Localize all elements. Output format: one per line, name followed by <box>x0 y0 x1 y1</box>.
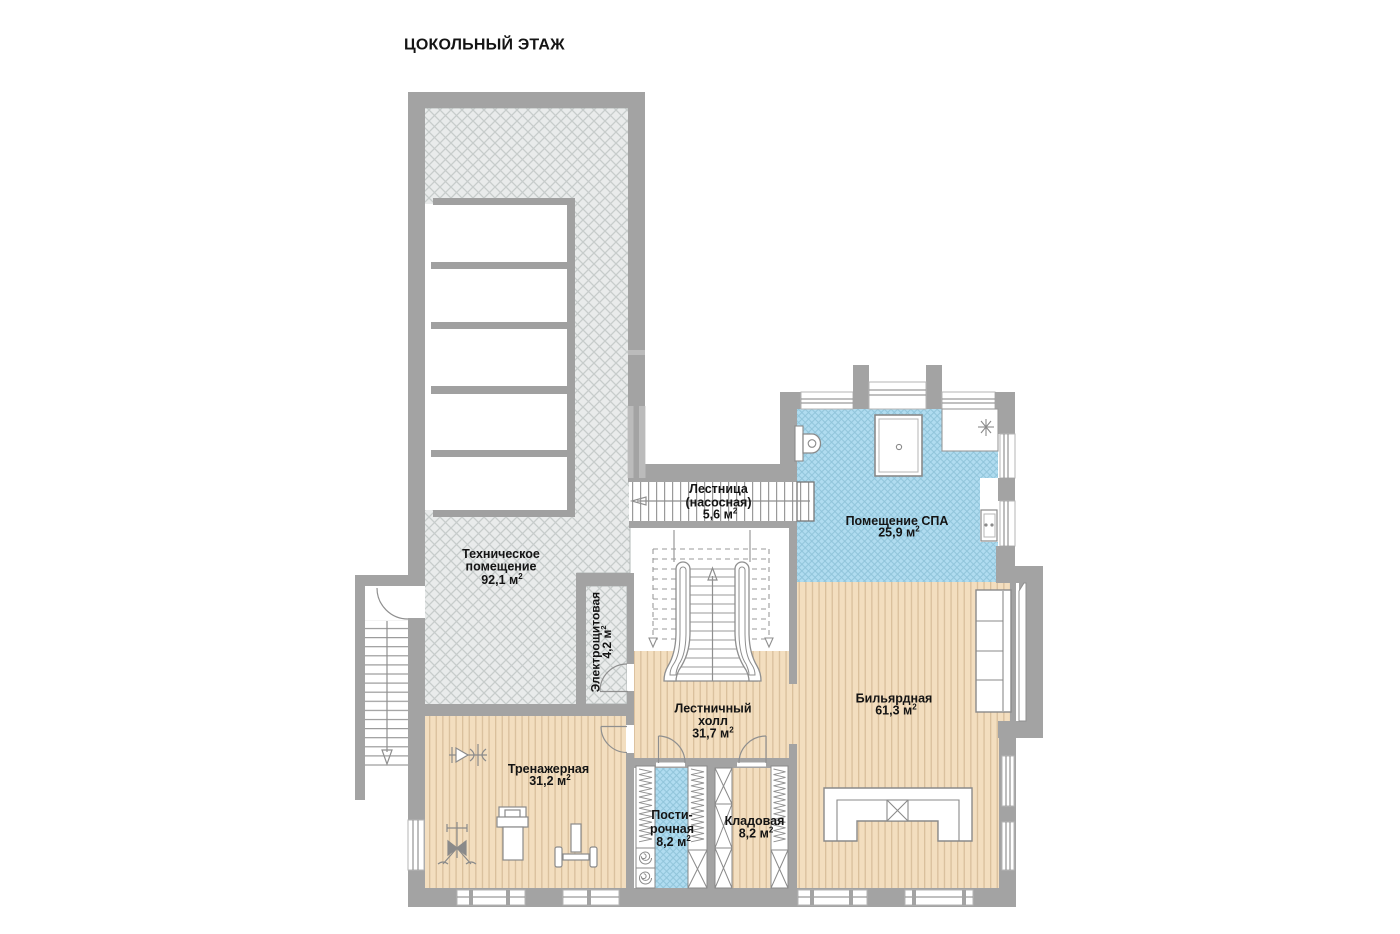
svg-text:8,2 м2: 8,2 м2 <box>739 826 774 841</box>
svg-text:4,2 м2: 4,2 м2 <box>599 625 614 658</box>
svg-text:5,6 м2: 5,6 м2 <box>703 507 738 522</box>
svg-text:25,9 м2: 25,9 м2 <box>878 525 920 540</box>
svg-text:31,2 м2: 31,2 м2 <box>529 773 571 788</box>
svg-text:Лестница: Лестница <box>689 482 749 496</box>
svg-text:помещение: помещение <box>466 560 537 574</box>
svg-text:Пости-: Пости- <box>651 808 692 822</box>
svg-text:61,3 м2: 61,3 м2 <box>875 703 917 718</box>
svg-text:92,1 м2: 92,1 м2 <box>481 572 523 587</box>
svg-text:8,2 м2: 8,2 м2 <box>656 834 691 849</box>
svg-text:ЦОКОЛЬНЫЙ ЭТАЖ: ЦОКОЛЬНЫЙ ЭТАЖ <box>404 35 565 54</box>
svg-text:31,7 м2: 31,7 м2 <box>692 726 734 741</box>
